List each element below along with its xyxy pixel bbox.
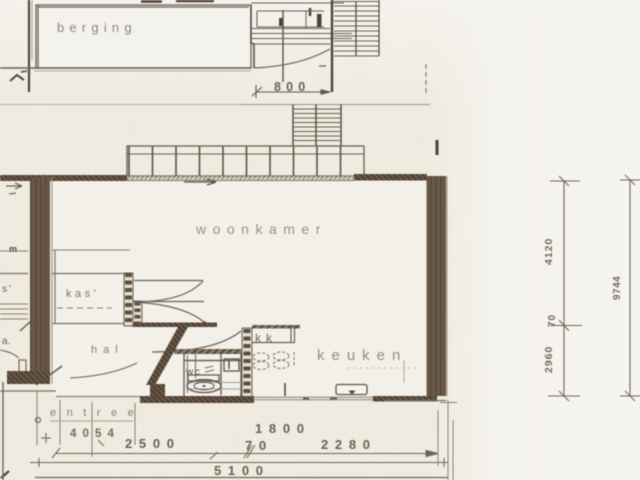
svg-text:9744: 9744	[612, 276, 623, 300]
svg-text:keuken: keuken	[317, 347, 407, 364]
svg-text:5100: 5100	[214, 463, 270, 478]
svg-text:70: 70	[245, 438, 273, 453]
svg-text:woonkamer: woonkamer	[195, 221, 327, 237]
svg-text:m: m	[9, 244, 17, 254]
svg-text:kk: kk	[255, 331, 277, 345]
svg-text:2960: 2960	[543, 346, 555, 373]
svg-text:1800: 1800	[255, 421, 311, 436]
svg-text:entree: entree	[50, 407, 144, 419]
svg-text:hal: hal	[91, 344, 124, 356]
svg-text:s': s'	[2, 284, 13, 295]
svg-text:4120: 4120	[543, 238, 555, 265]
svg-text:berging: berging	[57, 20, 137, 35]
svg-text:a.: a.	[2, 336, 10, 347]
svg-text:70: 70	[547, 314, 558, 327]
svg-text:kas': kas'	[66, 288, 99, 300]
svg-text:4054: 4054	[70, 428, 120, 440]
svg-text:2280: 2280	[321, 437, 377, 452]
svg-text:2500: 2500	[125, 436, 181, 451]
